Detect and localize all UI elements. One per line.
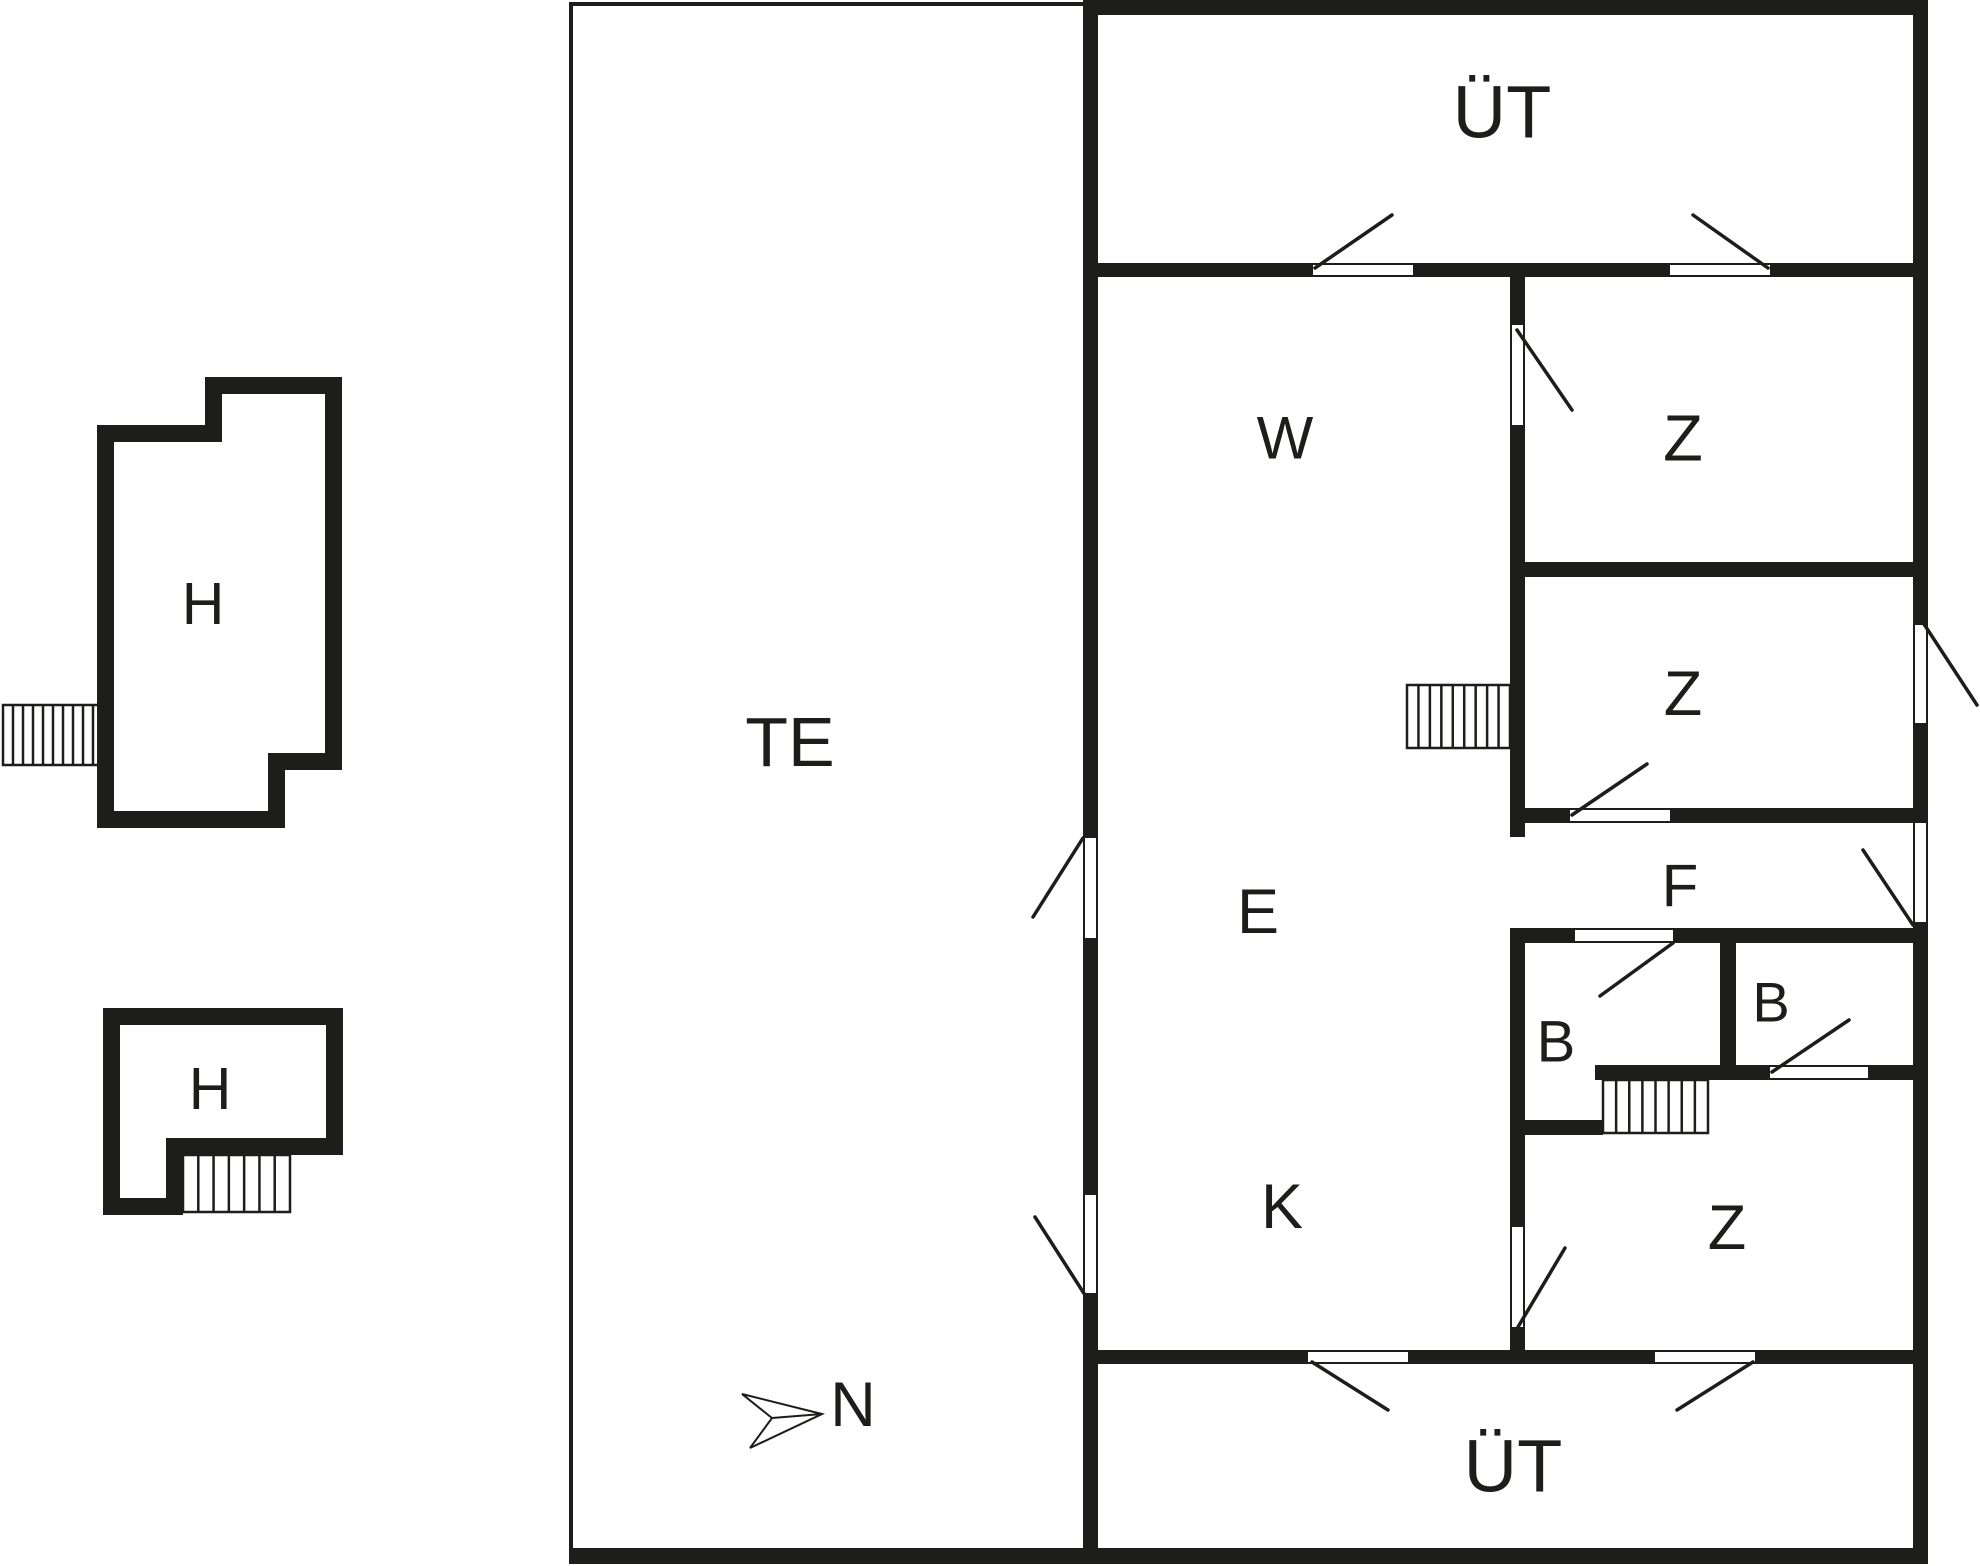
wall-b-left-bottom [1510,1120,1603,1135]
room-label-ut-top: ÜT [1453,71,1552,154]
room-label-h1: H [182,571,225,637]
wall-ut-top-bottom [1098,263,1928,277]
door-opening-ut-top-left [1313,263,1413,277]
room-label-z-middle: Z [1664,659,1702,729]
door-opening-k-to-terrace [1083,1195,1098,1293]
room-label-e: E [1237,877,1279,947]
room-label-b-left: B [1537,1010,1576,1075]
stairs-z2-entry [1407,685,1510,748]
floor-plan-page: NTEÜTWZZEFBBKZÜTHH [0,0,1980,1566]
room-label-k: K [1261,1172,1303,1242]
door-opening-f-to-b-left [1575,928,1673,943]
wall-z1-z2 [1510,562,1928,577]
room-label-f: F [1662,853,1699,920]
wall-ut-bottom-top [1098,1350,1928,1364]
door-opening-ut-top-right [1670,263,1770,277]
building-wall-bottom [569,1548,1928,1564]
room-label-terrace: TE [745,703,834,781]
room-label-h2: H [189,1056,232,1122]
door-opening-z3-to-b-right [1770,1065,1868,1080]
building-wall-left [1083,0,1098,1563]
floor-plan: NTEÜTWZZEFBBKZÜTHH [0,0,1980,1566]
plan-background [0,0,1980,1566]
compass-label: N [830,1370,876,1440]
door-opening-ut-bottom-left [1308,1350,1408,1364]
room-label-b-right: B [1752,971,1789,1034]
room-label-ut-bottom: ÜT [1464,1425,1563,1508]
door-opening-f-to-z2 [1570,808,1670,823]
door-opening-z2-exterior [1913,625,1928,723]
room-label-z-bottom: Z [1708,1193,1746,1263]
door-opening-k-to-z3 [1510,1227,1525,1327]
door-opening-f-exterior [1913,823,1928,922]
terrace-edge-top [569,2,1083,6]
wall-b-divider [1720,943,1736,1065]
building-wall-top [1083,0,1928,15]
room-label-z-upper: Z [1663,402,1703,475]
wall-b-top [1510,928,1928,943]
passage-e-to-f [1510,837,1525,928]
building-wall-right [1913,0,1928,1563]
room-label-w: W [1257,405,1314,472]
door-opening-ut-bottom-right [1655,1350,1755,1364]
door-opening-w-to-terrace [1083,838,1098,938]
terrace-edge-left [569,2,573,1556]
